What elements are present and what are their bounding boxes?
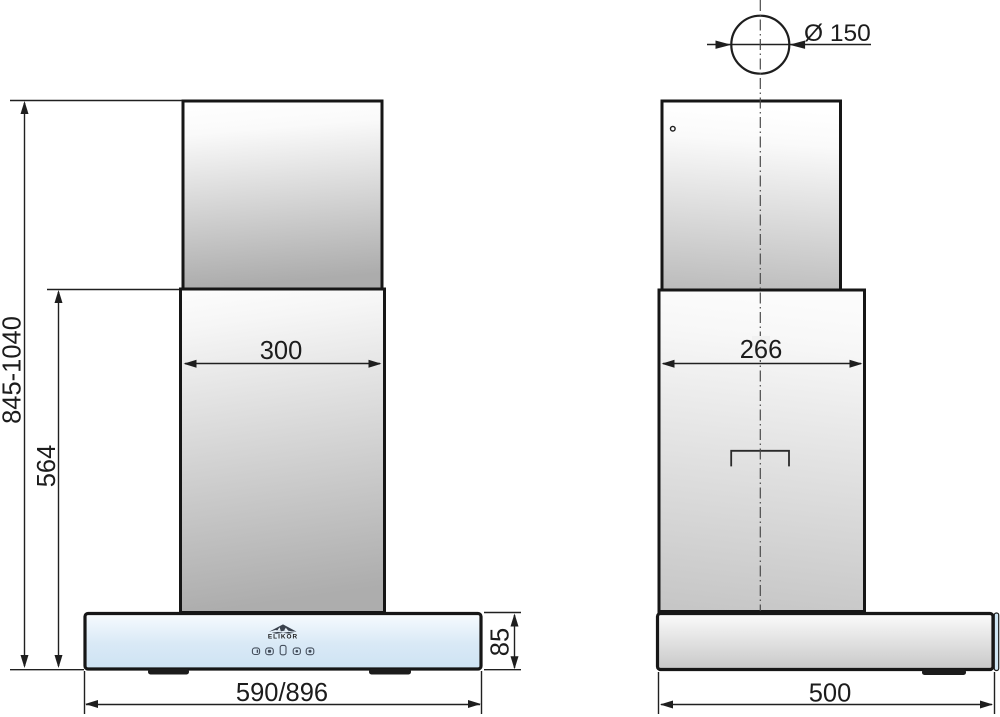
- svg-text:300: 300: [260, 337, 303, 365]
- svg-text:ELIKOR: ELIKOR: [268, 633, 298, 640]
- svg-text:845-1040: 845-1040: [0, 316, 27, 424]
- svg-text:85: 85: [487, 628, 515, 656]
- svg-text:500: 500: [809, 680, 852, 708]
- svg-text:Ø 150: Ø 150: [804, 20, 871, 47]
- svg-text:266: 266: [740, 336, 783, 364]
- svg-text:590/896: 590/896: [236, 679, 328, 707]
- svg-text:564: 564: [33, 445, 61, 488]
